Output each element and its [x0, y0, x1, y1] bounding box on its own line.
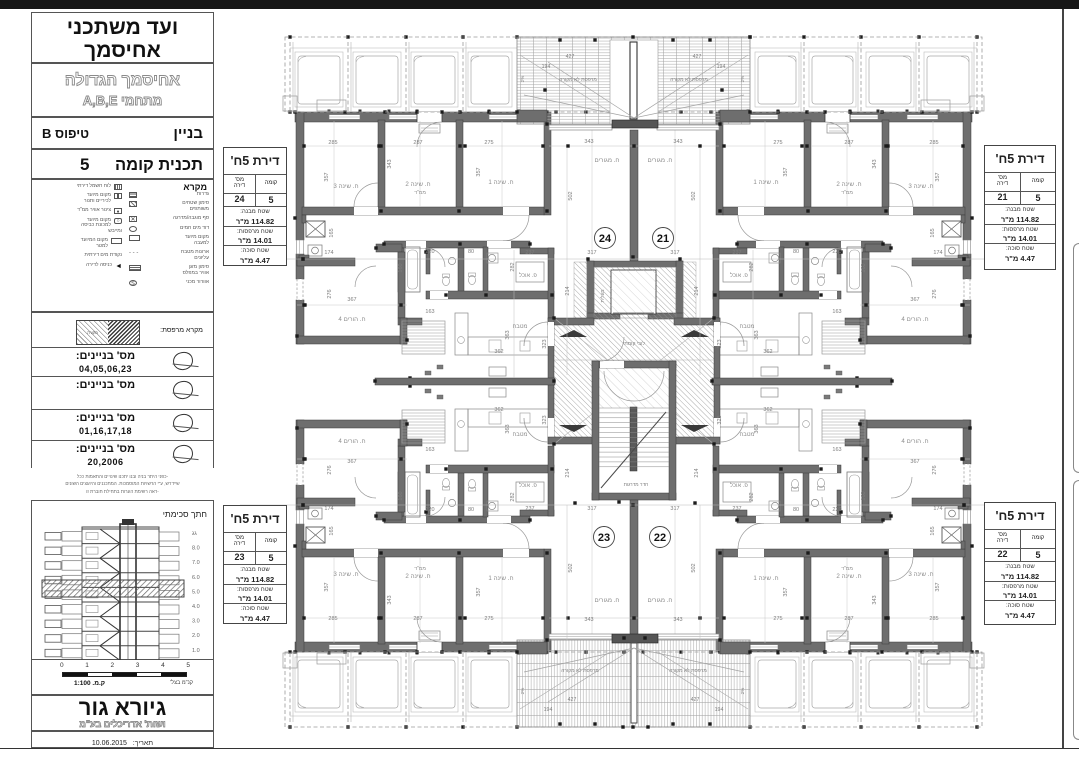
svg-text:275: 275: [484, 616, 493, 622]
svg-text:220: 220: [425, 249, 434, 255]
svg-text:ח. שינה 3: ח. שינה 3: [908, 183, 933, 190]
svg-text:5.0: 5.0: [192, 589, 200, 595]
svg-text:מטבח: מטבח: [739, 324, 754, 330]
svg-text:502: 502: [568, 191, 574, 200]
svg-text:163: 163: [832, 447, 841, 453]
svg-text:343: 343: [387, 159, 393, 168]
svg-text:276: 276: [327, 289, 333, 298]
svg-text:194: 194: [544, 707, 553, 713]
svg-text:362: 362: [763, 407, 772, 413]
svg-text:פ. אוכל: פ. אוכל: [519, 272, 537, 279]
svg-text:ח. שינה 2: ח. שינה 2: [836, 181, 861, 188]
svg-text:1.0: 1.0: [192, 648, 200, 654]
svg-text:ח. שינה 2: ח. שינה 2: [405, 181, 430, 188]
svg-text:214: 214: [565, 468, 571, 477]
svg-text:317: 317: [587, 506, 596, 512]
svg-text:367: 367: [910, 297, 919, 303]
svg-text:22: 22: [654, 532, 666, 544]
svg-text:ח. שינה 3: ח. שינה 3: [333, 183, 358, 190]
svg-text:מטבח: מטבח: [512, 432, 527, 438]
svg-text:2.0: 2.0: [192, 633, 200, 639]
svg-text:פ. אוכל: פ. אוכל: [730, 272, 748, 279]
svg-text:275: 275: [773, 616, 782, 622]
svg-text:מטבח: מטבח: [739, 432, 754, 438]
svg-text:ח. שינה 3: ח. שינה 3: [908, 571, 933, 578]
svg-text:343: 343: [872, 595, 878, 604]
svg-text:275: 275: [773, 140, 782, 146]
svg-text:80: 80: [468, 507, 474, 513]
svg-text:362: 362: [763, 349, 772, 355]
svg-text:214: 214: [694, 286, 700, 295]
svg-text:4.0: 4.0: [192, 604, 200, 610]
svg-text:2%: 2%: [740, 76, 745, 83]
svg-text:287: 287: [844, 616, 853, 622]
svg-text:367: 367: [347, 459, 356, 465]
svg-text:165: 165: [329, 228, 335, 237]
svg-text:363: 363: [505, 330, 511, 339]
svg-text:282: 282: [510, 262, 516, 271]
svg-text:276: 276: [932, 289, 938, 298]
svg-text:ח. הורים 4: ח. הורים 4: [901, 316, 928, 323]
svg-text:ח. מגורים: ח. מגורים: [595, 157, 620, 164]
svg-text:23: 23: [598, 532, 610, 544]
svg-text:מטבח: מטבח: [512, 324, 527, 330]
svg-text:287: 287: [413, 616, 422, 622]
svg-text:174: 174: [324, 250, 333, 256]
svg-text:502: 502: [691, 191, 697, 200]
svg-text:220: 220: [832, 507, 841, 513]
svg-text:פ. אוכל: פ. אוכל: [730, 482, 748, 489]
svg-text:חדר מדרגות: חדר מדרגות: [624, 483, 649, 488]
svg-text:357: 357: [324, 582, 330, 591]
svg-text:214: 214: [694, 468, 700, 477]
svg-text:323: 323: [717, 415, 723, 424]
svg-text:214: 214: [565, 286, 571, 295]
svg-text:ח. הורים 4: ח. הורים 4: [338, 438, 365, 445]
svg-text:367: 367: [910, 459, 919, 465]
svg-text:362: 362: [494, 407, 503, 413]
svg-text:194: 194: [717, 64, 726, 70]
svg-text:237: 237: [525, 250, 534, 256]
svg-text:220: 220: [832, 249, 841, 255]
svg-text:174: 174: [933, 250, 942, 256]
svg-text:174: 174: [933, 506, 942, 512]
svg-text:317: 317: [670, 506, 679, 512]
svg-text:362: 362: [494, 349, 503, 355]
svg-text:8.0: 8.0: [192, 546, 200, 552]
svg-text:220: 220: [425, 507, 434, 513]
svg-text:357: 357: [324, 172, 330, 181]
svg-text:343: 343: [584, 617, 593, 623]
svg-text:165: 165: [930, 526, 936, 535]
svg-text:ח. שינה 1: ח. שינה 1: [488, 575, 513, 582]
svg-text:502: 502: [568, 563, 574, 572]
svg-text:357: 357: [476, 587, 482, 596]
svg-text:363: 363: [505, 424, 511, 433]
svg-text:287: 287: [844, 140, 853, 146]
svg-text:ח. הורים 4: ח. הורים 4: [338, 316, 365, 323]
svg-text:מרפסת לא מקורה: מרפסת לא מקורה: [669, 667, 707, 674]
svg-text:427: 427: [568, 697, 577, 703]
svg-text:80: 80: [793, 507, 799, 513]
svg-text:ממ"ד: ממ"ד: [841, 190, 853, 196]
svg-text:ממ"ד: ממ"ד: [414, 566, 426, 572]
svg-text:237: 237: [732, 506, 741, 512]
svg-text:357: 357: [783, 167, 789, 176]
svg-text:287: 287: [413, 140, 422, 146]
svg-text:160: 160: [398, 263, 404, 272]
svg-text:343: 343: [387, 595, 393, 604]
svg-text:ח. שינה 1: ח. שינה 1: [753, 179, 778, 186]
svg-text:163: 163: [425, 309, 434, 315]
svg-text:ח. מגורים: ח. מגורים: [595, 597, 620, 604]
svg-text:317: 317: [587, 250, 596, 256]
svg-text:194: 194: [715, 707, 724, 713]
svg-text:276: 276: [932, 465, 938, 474]
svg-text:285: 285: [328, 616, 337, 622]
svg-text:282: 282: [749, 262, 755, 271]
svg-text:ח. שינה 2: ח. שינה 2: [405, 573, 430, 580]
svg-text:ח. שינה 2: ח. שינה 2: [836, 573, 861, 580]
svg-text:276: 276: [327, 465, 333, 474]
svg-text:282: 282: [510, 492, 516, 501]
svg-text:ח. שינה 1: ח. שינה 1: [488, 179, 513, 186]
svg-text:343: 343: [673, 617, 682, 623]
svg-text:לובי קומתי: לובי קומתי: [623, 340, 645, 347]
svg-text:363: 363: [754, 330, 760, 339]
svg-text:237: 237: [732, 250, 741, 256]
svg-text:174: 174: [324, 506, 333, 512]
svg-text:367: 367: [347, 297, 356, 303]
svg-text:163: 163: [832, 309, 841, 315]
svg-text:ח. מגורים: ח. מגורים: [648, 597, 673, 604]
svg-text:163: 163: [425, 447, 434, 453]
svg-text:194: 194: [542, 64, 551, 70]
svg-text:285: 285: [929, 616, 938, 622]
svg-text:ח. שינה 3: ח. שינה 3: [333, 571, 358, 578]
svg-text:343: 343: [584, 139, 593, 145]
svg-text:160: 160: [861, 491, 867, 500]
svg-text:323: 323: [542, 415, 548, 424]
svg-text:160: 160: [861, 263, 867, 272]
svg-text:285: 285: [929, 140, 938, 146]
svg-text:317: 317: [670, 250, 679, 256]
svg-text:ח. שינה 1: ח. שינה 1: [753, 575, 778, 582]
svg-text:343: 343: [673, 139, 682, 145]
svg-text:285: 285: [328, 140, 337, 146]
svg-text:282: 282: [749, 492, 755, 501]
svg-text:363: 363: [754, 424, 760, 433]
svg-text:ממ"ד: ממ"ד: [841, 566, 853, 572]
svg-text:275: 275: [484, 140, 493, 146]
svg-text:357: 357: [476, 167, 482, 176]
svg-text:502: 502: [691, 563, 697, 572]
svg-text:323: 323: [542, 339, 548, 348]
svg-text:ח. הורים 4: ח. הורים 4: [901, 438, 928, 445]
svg-text:גג: גג: [192, 531, 197, 537]
svg-text:פ. אוכל: פ. אוכל: [519, 482, 537, 489]
svg-text:237: 237: [525, 506, 534, 512]
svg-text:מעלית: מעלית: [599, 289, 606, 302]
svg-text:2%: 2%: [740, 688, 745, 695]
svg-text:2%: 2%: [520, 76, 525, 83]
svg-text:357: 357: [783, 587, 789, 596]
svg-text:323: 323: [717, 339, 723, 348]
svg-text:80: 80: [793, 249, 799, 255]
svg-text:343: 343: [872, 159, 878, 168]
svg-text:357: 357: [935, 172, 941, 181]
svg-text:3.0: 3.0: [192, 619, 200, 625]
svg-text:427: 427: [566, 54, 575, 60]
svg-text:165: 165: [930, 228, 936, 237]
svg-text:24: 24: [599, 233, 612, 245]
svg-text:427: 427: [691, 697, 700, 703]
svg-text:7.0: 7.0: [192, 560, 200, 566]
svg-text:21: 21: [657, 233, 669, 245]
svg-text:2%: 2%: [520, 688, 525, 695]
svg-text:160: 160: [398, 491, 404, 500]
svg-text:מרפסת לא מקורה: מרפסת לא מקורה: [670, 76, 708, 83]
svg-text:6.0: 6.0: [192, 575, 200, 581]
svg-text:מרפסת לא מקורה: מרפסת לא מקורה: [559, 76, 597, 83]
svg-text:357: 357: [935, 582, 941, 591]
svg-text:165: 165: [329, 526, 335, 535]
svg-text:ממ"ד: ממ"ד: [414, 190, 426, 196]
svg-text:ח. מגורים: ח. מגורים: [648, 157, 673, 164]
svg-text:80: 80: [468, 249, 474, 255]
svg-text:427: 427: [693, 54, 702, 60]
